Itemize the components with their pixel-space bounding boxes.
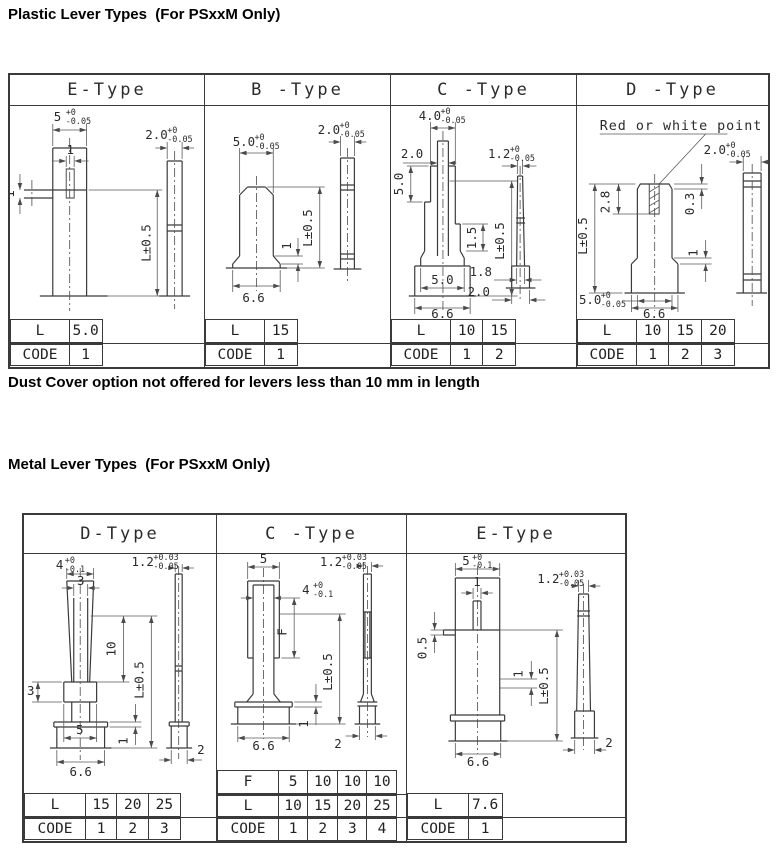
metal-col-d: D-Type 4 +0 -0.1 3 10 L±0.5 3 5 6.6 (24, 515, 216, 841)
metal-e-type-diagram: 5 +0 -0.1 1 0.5 1 L±0.5 6.6 1.2 +0.03 (407, 554, 625, 793)
plastic-c-l-row: L 10 15 (391, 319, 576, 343)
metal-c-front-view: 5 4 +0 -0.1 F L±0.5 1 6.6 (231, 554, 346, 753)
metal-c-side-view: 1.2 +0.03 -0.05 2 (320, 554, 387, 751)
plastic-e-l-row: L 5.0 (10, 319, 204, 343)
dim-side-width-tol-lo: -0.05 (559, 578, 584, 588)
plastic-b-l-row: L 15 (205, 319, 390, 343)
dim-five-label: 5 (76, 722, 83, 737)
dim-two-label: 2 (197, 742, 204, 757)
code-row-label: CODE (10, 344, 70, 367)
plastic-e-code-row: CODE 1 (10, 343, 204, 367)
l-row-label: L (577, 319, 637, 343)
code-value: 1 (468, 818, 503, 841)
dim-side-width-label: 2.0 (704, 142, 726, 157)
dim-f-label: F (274, 628, 289, 636)
l-value: 15 (85, 793, 118, 817)
metal-d-type-diagram: 4 +0 -0.1 3 10 L±0.5 3 5 6.6 1 1.2 (24, 554, 216, 793)
plastic-b-header: B -Type (205, 75, 390, 106)
dim-slot-label: 1 (66, 142, 73, 157)
dim-base-label: 6.6 (242, 290, 264, 305)
plastic-b-side-view: 2.0 +0 -0.05 (318, 120, 366, 282)
dim-dome-label: 0.3 (682, 193, 697, 216)
plastic-d-type-diagram: Red or white point L±0.5 2.8 0.3 1 5.0 +… (577, 106, 768, 319)
dim-length-label: L±0.5 (131, 661, 146, 699)
code-value: 3 (337, 818, 368, 841)
l-row-label: L (10, 319, 70, 343)
dim-step-label: 0.5 (415, 637, 430, 660)
dim-skirt-label: 1 (686, 249, 701, 257)
code-row-label: CODE (205, 344, 265, 367)
plastic-e-header: E-Type (10, 75, 204, 106)
dim-width-label: 5 (462, 554, 469, 568)
l-value: 20 (337, 795, 368, 818)
dim-blade-label: 2.0 (401, 146, 423, 161)
metal-d-side-view: 1.2 +0.03 -0.05 2 (131, 554, 204, 764)
f-value: 5 (278, 770, 309, 794)
code-value: 1 (264, 344, 298, 367)
dim-side-width-tol-lo: -0.05 (510, 153, 535, 163)
dim-side-width-tol-lo: -0.05 (153, 561, 178, 571)
l-row-label: L (217, 795, 279, 818)
red-white-point-note: Red or white point (600, 119, 763, 134)
metal-d-l-row: L 15 20 25 (24, 793, 216, 817)
dim-w4-tol-lo: -0.1 (313, 589, 333, 599)
plastic-d-side-view: 2.0 +0 -0.05 (704, 140, 768, 306)
metal-e-front-view: 5 +0 -0.1 1 0.5 1 L±0.5 6.6 (415, 554, 563, 769)
plastic-e-type-diagram: 5 +0 -0.05 1 1 L±0.5 2.0 +0 -0.05 (10, 106, 204, 319)
dim-two-label: 2 (334, 736, 341, 751)
plastic-section-title: Plastic Lever Types (For PSxxM Only) (8, 6, 280, 23)
dim-base-label: 6.6 (69, 764, 91, 779)
dim-side-width-tol-lo: -0.05 (342, 561, 367, 571)
code-row-label: CODE (407, 818, 469, 841)
metal-c-f-row: F 5 10 10 10 (217, 770, 406, 794)
code-value: 2 (668, 344, 702, 367)
plastic-col-c: C -Type 4.0 +0 -0.05 2.0 5.0 1.5 L±0.5 5… (390, 75, 576, 367)
code-row-label: CODE (577, 344, 637, 367)
plastic-b-drawing: 5.0 +0 -0.05 1 L±0.5 6.6 2.0 +0 -0.05 (205, 106, 390, 319)
plastic-col-b: B -Type 5.0 +0 -0.05 1 L±0.5 6.6 (204, 75, 390, 367)
dim-side-width-label: 1.2 (131, 554, 153, 569)
code-row-label: CODE (24, 818, 86, 841)
dim-base-label: 6.6 (431, 306, 453, 319)
code-value: 1 (69, 344, 103, 367)
dim-width-tol-lo: -0.05 (66, 116, 91, 126)
dim-side-width-tol-lo: -0.05 (340, 129, 365, 139)
dim-one-label: 1 (510, 670, 525, 678)
dim-slot-depth-label: 2.8 (598, 191, 613, 214)
plastic-c-type-diagram: 4.0 +0 -0.05 2.0 5.0 1.5 L±0.5 5.0 6.6 1… (391, 106, 576, 319)
plastic-col-d: D -Type Red or white point L±0.5 2.8 0.3… (576, 75, 768, 367)
dim-side-width-tol-lo: -0.05 (725, 149, 750, 159)
metal-e-code-row: CODE 1 (407, 817, 625, 841)
dim-ten-label: 10 (104, 641, 119, 656)
plastic-b-front-view: 5.0 +0 -0.05 1 L±0.5 6.6 (226, 132, 325, 305)
l-value: 20 (116, 793, 149, 817)
dim-side-width-label: 2.0 (318, 122, 340, 137)
metal-d-code-row: CODE 1 2 3 (24, 817, 216, 841)
dim-length-label: L±0.5 (138, 224, 153, 262)
dim-side-width-label: 1.2 (320, 554, 342, 569)
metal-d-front-view: 4 +0 -0.1 3 10 L±0.5 3 5 6.6 1 (27, 555, 157, 779)
metal-c-header: C -Type (217, 515, 406, 554)
l-value: 5.0 (69, 319, 103, 343)
dim-length-label: L±0.5 (536, 667, 551, 705)
f-row-label: F (217, 770, 279, 794)
code-value: 3 (701, 344, 735, 367)
plastic-b-code-row: CODE 1 (205, 343, 390, 367)
metal-lever-table: D-Type 4 +0 -0.1 3 10 L±0.5 3 5 6.6 (22, 513, 627, 843)
metal-e-drawing: 5 +0 -0.1 1 0.5 1 L±0.5 6.6 1.2 +0.03 (407, 554, 625, 793)
code-value: 2 (116, 818, 149, 841)
l-value: 15 (668, 319, 702, 343)
plastic-b-type-diagram: 5.0 +0 -0.05 1 L±0.5 6.6 2.0 +0 -0.05 (205, 106, 390, 319)
plastic-e-side-view: 2.0 +0 -0.05 (145, 125, 194, 309)
code-value: 2 (482, 344, 516, 367)
plastic-c-front-view: 4.0 +0 -0.05 2.0 5.0 1.5 L±0.5 5.0 6.6 (391, 106, 518, 319)
plastic-col-e: E-Type 5 +0 -0.05 1 1 L±0.5 (10, 75, 204, 367)
code-value: 3 (148, 818, 181, 841)
dim-width-label: 5 (260, 554, 267, 566)
plastic-d-code-row: CODE 1 2 3 (577, 343, 768, 367)
l-value: 25 (148, 793, 181, 817)
metal-c-l-row: L 10 15 20 25 (217, 794, 406, 818)
metal-e-side-view: 1.2 +0.03 -0.05 2 (537, 569, 612, 754)
l-row-label: L (407, 793, 469, 817)
dim-width-tol-lo: -0.05 (601, 299, 626, 309)
dim-one-label: 1 (296, 720, 311, 728)
metal-e-header: E-Type (407, 515, 625, 554)
dim-step-label: 1 (279, 242, 294, 250)
plastic-lever-table: E-Type 5 +0 -0.05 1 1 L±0.5 (8, 73, 770, 369)
l-value: 7.6 (468, 793, 503, 817)
plastic-d-header: D -Type (577, 75, 768, 106)
l-value: 25 (366, 795, 397, 818)
dim-base-label: 6.6 (252, 738, 274, 753)
metal-d-drawing: 4 +0 -0.1 3 10 L±0.5 3 5 6.6 1 1.2 (24, 554, 216, 793)
code-value: 1 (278, 818, 309, 841)
dim-one-label: 1 (115, 737, 130, 745)
metal-c-type-diagram: 5 4 +0 -0.1 F L±0.5 1 6.6 1.2 +0.03 -0 (217, 554, 406, 770)
plastic-c-header: C -Type (391, 75, 576, 106)
metal-section-title: Metal Lever Types (For PSxxM Only) (8, 456, 270, 473)
dim-side-width-label: 2.0 (145, 127, 167, 142)
dim-width-label: 4.0 (419, 108, 441, 123)
dim-root-label: 1.8 (470, 264, 492, 279)
dim-length-label: L±0.5 (320, 653, 335, 691)
dim-length-label: L±0.5 (577, 217, 590, 255)
dim-slot-label: 1 (473, 574, 480, 589)
dim-tip-label: 3 (77, 573, 84, 588)
dim-width-tol-lo: -0.05 (440, 115, 465, 125)
dim-width-tol-lo: -0.1 (472, 560, 492, 570)
f-value: 10 (307, 770, 338, 794)
plastic-d-drawing: Red or white point L±0.5 2.8 0.3 1 5.0 +… (577, 106, 768, 319)
plastic-e-drawing: 5 +0 -0.05 1 1 L±0.5 2.0 +0 -0.05 (10, 106, 204, 319)
metal-c-drawing: 5 4 +0 -0.1 F L±0.5 1 6.6 1.2 +0.03 -0 (217, 554, 406, 770)
code-row-label: CODE (391, 344, 451, 367)
l-value: 10 (450, 319, 484, 343)
dim-width-label: 5.0 (233, 134, 255, 149)
l-value: 20 (701, 319, 735, 343)
dim-length-label: L±0.5 (300, 209, 315, 247)
plastic-c-drawing: 4.0 +0 -0.05 2.0 5.0 1.5 L±0.5 5.0 6.6 1… (391, 106, 576, 319)
code-value: 1 (450, 344, 484, 367)
dim-width-label: 5 (54, 109, 61, 124)
dust-cover-note: Dust Cover option not offered for levers… (8, 374, 480, 391)
l-value: 10 (636, 319, 670, 343)
metal-col-c: C -Type 5 4 +0 -0.1 F L±0.5 1 6.6 (216, 515, 406, 841)
metal-d-header: D-Type (24, 515, 216, 554)
dim-length-label: L±0.5 (492, 222, 507, 260)
metal-col-e: E-Type 5 +0 -0.1 1 0.5 1 L±0.5 6.6 (406, 515, 625, 841)
metal-e-l-row: L 7.6 (407, 793, 625, 817)
dim-step-label: 1.5 (464, 227, 479, 250)
code-value: 1 (85, 818, 118, 841)
l-row-label: L (24, 793, 86, 817)
l-row-label: L (391, 319, 451, 343)
dim-mid-label: 5.0 (431, 272, 453, 287)
dim-base-label: 6.6 (643, 306, 665, 319)
dim-side-width-label: 1.2 (537, 571, 559, 586)
plastic-c-code-row: CODE 1 2 (391, 343, 576, 367)
f-value: 10 (337, 770, 368, 794)
dim-width-tol-lo: -0.05 (254, 141, 279, 151)
code-value: 2 (307, 818, 338, 841)
code-value: 4 (366, 818, 397, 841)
code-value: 1 (636, 344, 670, 367)
l-value: 10 (278, 795, 309, 818)
code-row-label: CODE (217, 818, 279, 841)
l-row-label: L (205, 319, 265, 343)
plastic-e-front-view: 5 +0 -0.05 1 1 L±0.5 (10, 107, 162, 311)
dim-side-width-tol-lo: -0.05 (167, 134, 192, 144)
dim-foot-label: 2.0 (468, 284, 490, 299)
dim-width-label: 5.0 (579, 292, 601, 307)
dim-width-label: 4 (56, 557, 63, 572)
dim-two-label: 2 (605, 735, 612, 750)
l-value: 15 (307, 795, 338, 818)
dim-side-width-label: 1.2 (488, 146, 510, 161)
dim-neck-label: 5.0 (391, 173, 406, 196)
dim-w4-label: 4 (302, 582, 309, 597)
plastic-d-l-row: L 10 15 20 (577, 319, 768, 343)
dim-base-label: 6.6 (467, 754, 489, 769)
metal-c-code-row: CODE 1 2 3 4 (217, 817, 406, 841)
dim-tab-label: 1 (10, 190, 17, 198)
dim-collar-label: 3 (27, 683, 34, 698)
l-value: 15 (264, 319, 298, 343)
f-value: 10 (366, 770, 397, 794)
l-value: 15 (482, 319, 516, 343)
